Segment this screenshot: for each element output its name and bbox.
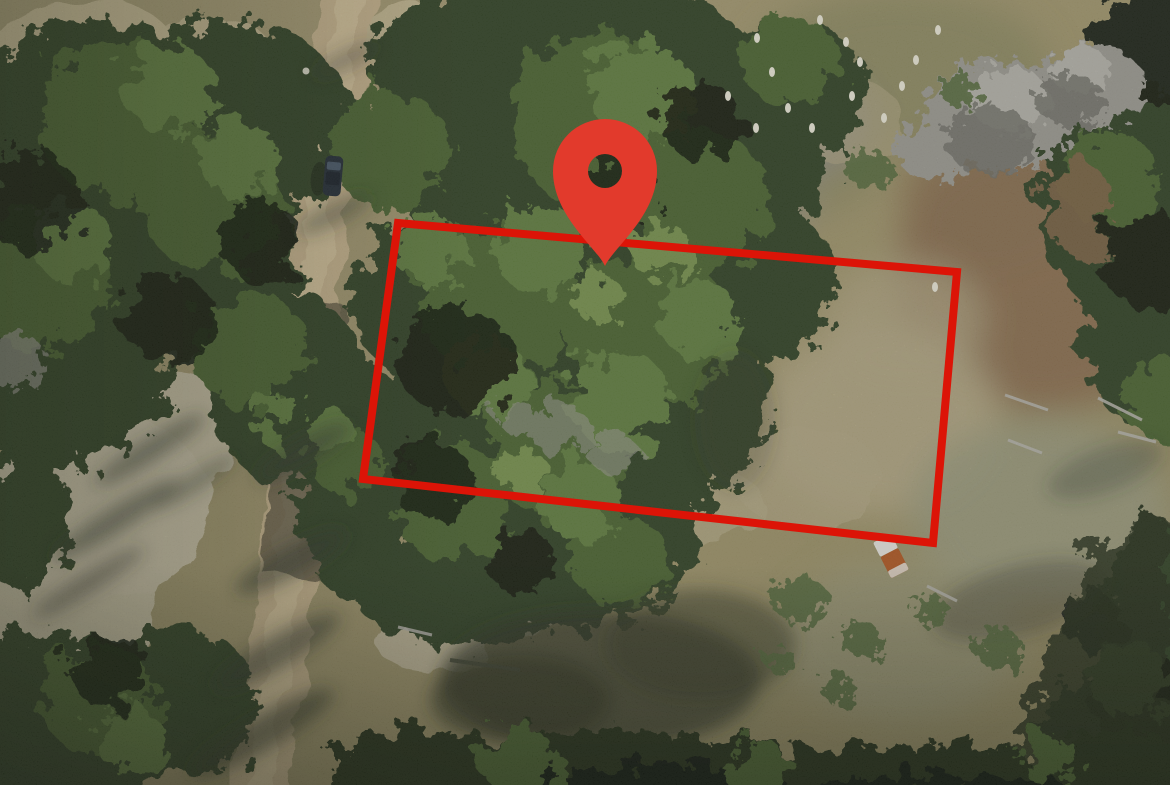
aerial-photo-canvas — [0, 0, 1170, 785]
grain-overlay-light — [0, 0, 1170, 785]
aerial-photo — [0, 0, 1170, 785]
